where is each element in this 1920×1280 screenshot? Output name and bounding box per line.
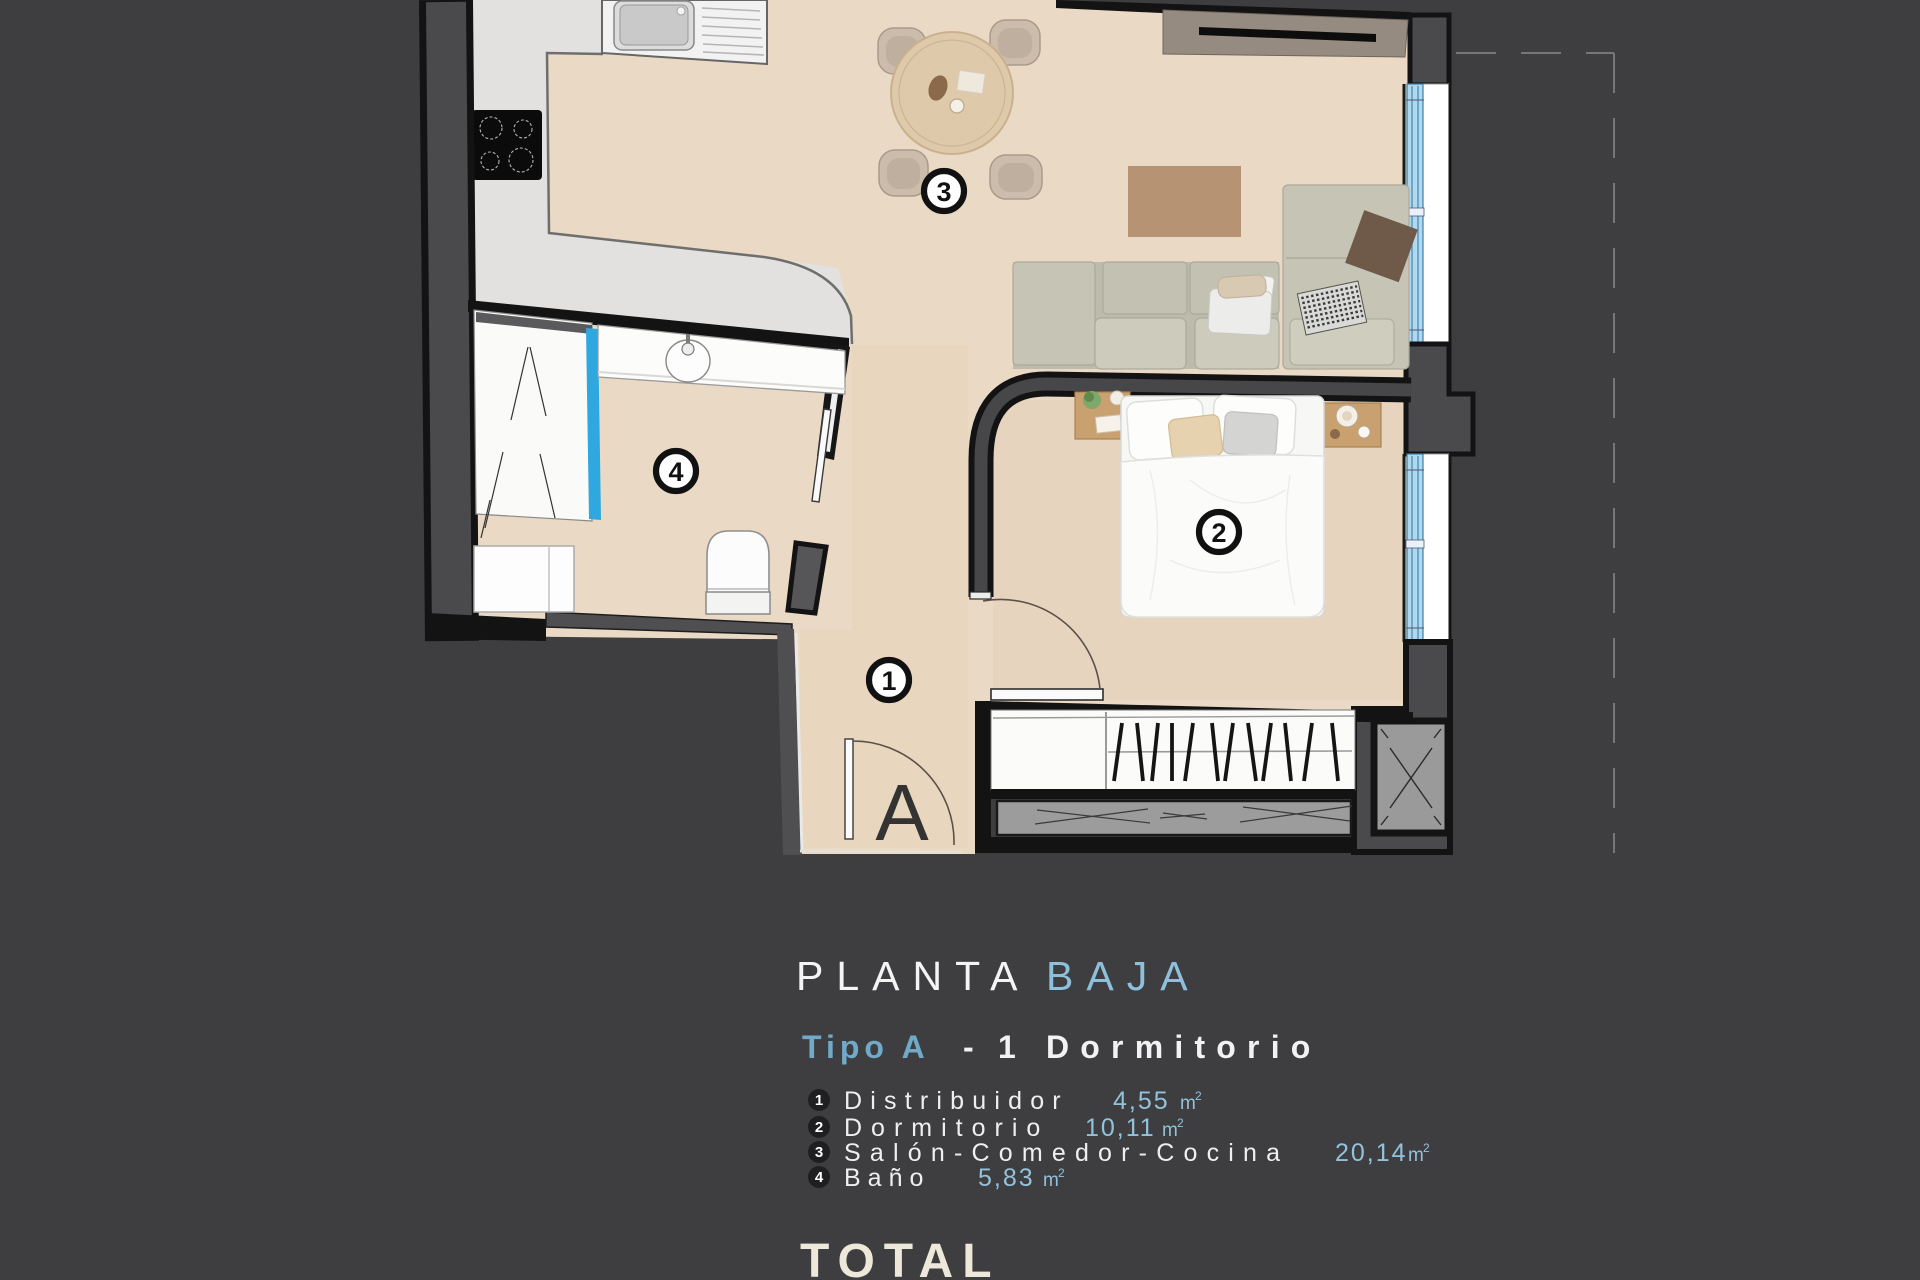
svg-text:4: 4 [815,1169,824,1186]
svg-text:1: 1 [815,1092,823,1109]
svg-text:4: 4 [668,457,683,487]
svg-text:m: m [1043,1170,1059,1191]
svg-text:3: 3 [815,1144,823,1161]
svg-text:2: 2 [815,1119,823,1136]
svg-text:m: m [1180,1093,1196,1114]
svg-text:Baño: Baño [844,1164,930,1192]
svg-text:m: m [1408,1145,1424,1166]
svg-text:Salón-Comedor-Cocina: Salón-Comedor-Cocina [844,1139,1289,1167]
svg-text:Dormitorio: Dormitorio [844,1114,1049,1142]
svg-text:2: 2 [1177,1116,1184,1130]
svg-text:Dormitorio: Dormitorio [1046,1029,1322,1065]
svg-text:2: 2 [1195,1089,1202,1103]
svg-text:PLANTA: PLANTA [796,953,1030,999]
svg-text:4,55: 4,55 [1113,1087,1170,1115]
svg-text:TOTAL: TOTAL [800,1235,1001,1280]
svg-text:5,83: 5,83 [978,1164,1035,1192]
svg-text:A: A [875,768,929,857]
svg-text:BAJA: BAJA [1046,953,1201,999]
svg-text:2: 2 [1211,518,1226,548]
svg-text:-: - [963,1029,974,1065]
svg-text:10,11: 10,11 [1085,1114,1156,1142]
svg-text:1: 1 [998,1029,1016,1065]
svg-text:2: 2 [1058,1166,1065,1180]
svg-text:Tipo A: Tipo A [802,1029,930,1065]
svg-text:Distribuidor: Distribuidor [844,1087,1069,1115]
svg-text:2: 2 [1423,1141,1430,1155]
svg-text:m: m [1162,1120,1178,1141]
svg-text:1: 1 [881,666,896,696]
svg-text:3: 3 [936,177,951,207]
svg-text:20,14: 20,14 [1335,1139,1408,1167]
